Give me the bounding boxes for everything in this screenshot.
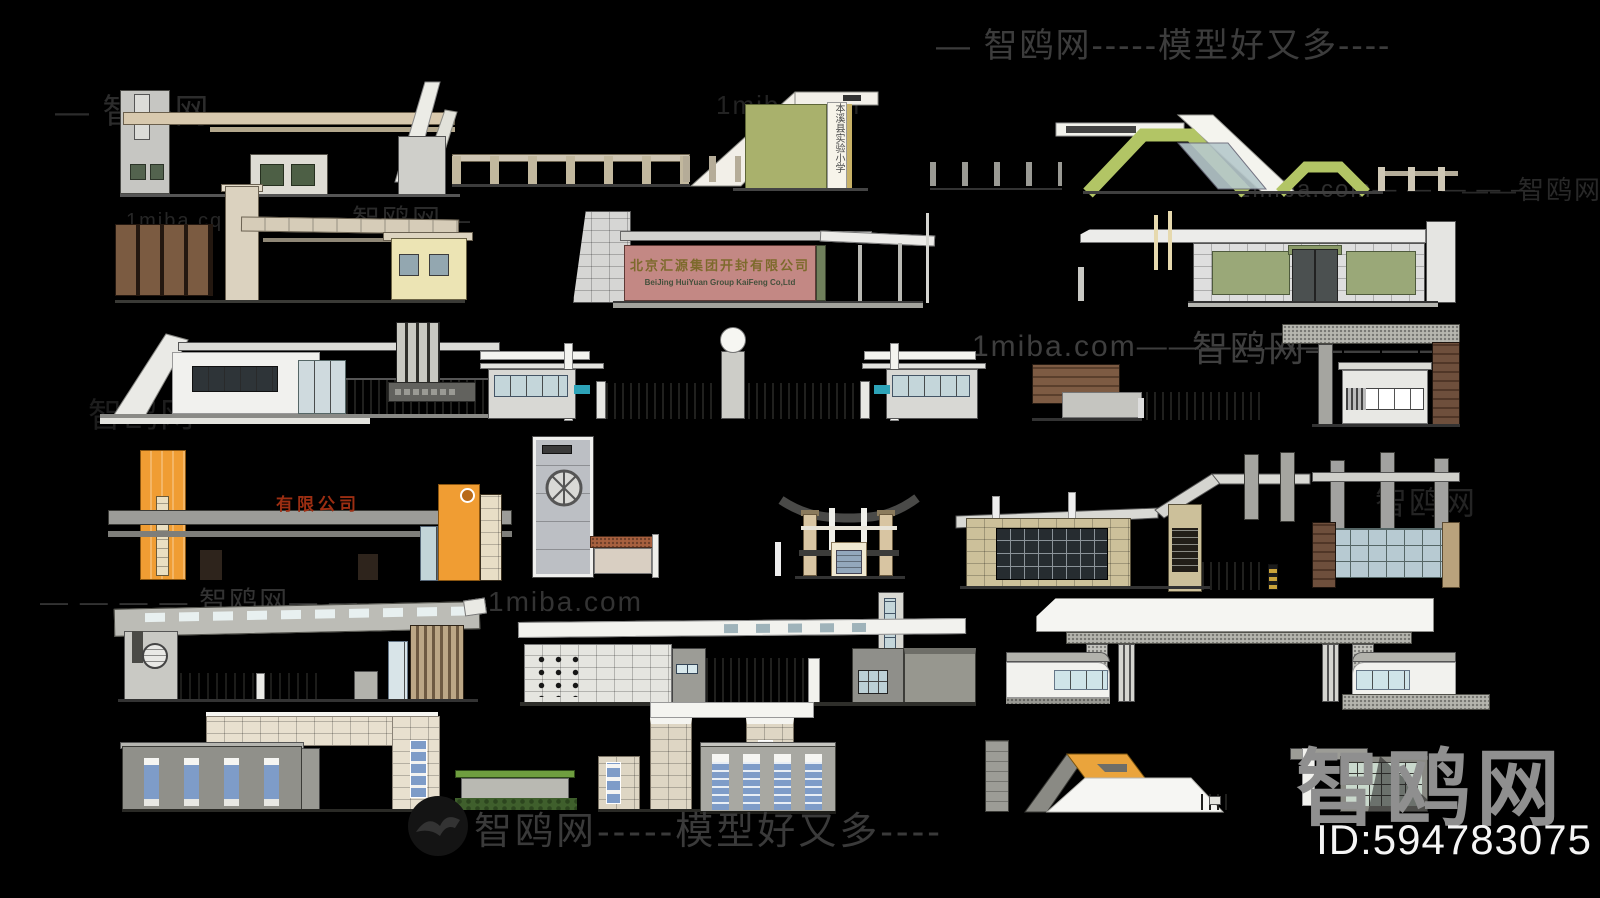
gray-block: [354, 671, 378, 701]
gull-logo-icon: [408, 796, 468, 856]
ground-line: [118, 699, 478, 702]
sign-text-cn: 北京汇源集团开封有限公司: [625, 255, 815, 274]
fence-right: [1378, 167, 1458, 193]
gold-strip: [847, 104, 852, 190]
tower-slats: [1172, 528, 1198, 572]
beige-pillar: [225, 186, 259, 302]
model-green-chevron-gate: [1028, 105, 1458, 203]
trapezoid-shapes: [1009, 738, 1233, 814]
tower-slot: [542, 445, 572, 454]
gray-block: [985, 740, 1009, 812]
wood-pillar: [1432, 342, 1460, 426]
booth-base: [1006, 698, 1110, 704]
gate-post: [596, 381, 606, 419]
white-apron: [100, 418, 370, 424]
dark-glass-grid: [996, 528, 1108, 580]
blue-window-stack: [606, 762, 621, 804]
ground-line: [960, 586, 1210, 589]
iron-fence: [1202, 562, 1264, 590]
green-panel-right: [1346, 251, 1416, 295]
window-grill: [1346, 388, 1366, 410]
round-logo-icon: [142, 643, 168, 669]
model-skylight-beam-gate: [108, 585, 488, 707]
model-wood-panel-gate: [113, 182, 468, 307]
company-name-text: 有限公司: [276, 490, 446, 512]
glass-booth: [298, 360, 346, 414]
gate-post: [860, 381, 870, 419]
base-platform: [1188, 301, 1438, 307]
beige-pillar: [1442, 522, 1460, 588]
guard-booth-left: [1006, 652, 1110, 704]
window-grid: [858, 670, 888, 694]
tiled-wall: [524, 644, 672, 704]
sign-text-marks: [395, 389, 455, 395]
ground-line: [733, 188, 868, 191]
beam-tip: [463, 598, 487, 617]
booth-window: [1356, 670, 1410, 690]
model-stone-glass-gate: [950, 452, 1312, 592]
shutter-window: [836, 550, 862, 574]
flat-canopy: [1080, 229, 1426, 243]
canopy: [820, 230, 935, 246]
fence-posts: [452, 156, 690, 184]
ground-line: [452, 184, 690, 187]
window-column: [144, 758, 159, 806]
booth-roof: [1338, 362, 1432, 370]
barrier-arm: [574, 385, 590, 394]
white-post: [1138, 398, 1144, 418]
skylight-slits: [145, 606, 465, 622]
model-canopy-green-panel-gate: [1078, 205, 1456, 310]
model-clock-tower-gate: [520, 432, 658, 582]
gate-pillar-left: [650, 718, 692, 812]
green-panel: [745, 104, 827, 190]
window-column: [264, 758, 279, 806]
fence-posts: [1378, 167, 1458, 191]
ground-line: [1032, 418, 1142, 421]
green-panel-left: [1212, 251, 1290, 295]
beige-pillar: [803, 514, 817, 576]
white-post: [775, 542, 781, 576]
booth-cap: [1006, 652, 1110, 662]
long-beam: [178, 342, 500, 351]
ground-line: [1312, 424, 1460, 427]
school-sign: 本溪县实验小学: [827, 102, 847, 190]
model-diagonal-ramp-gate: [100, 322, 500, 425]
model-id-label: ID:594783075: [1292, 816, 1592, 864]
booth-canopy: [864, 351, 976, 360]
wood-slat-panels: [115, 224, 213, 296]
iron-fence: [706, 658, 808, 704]
sphere-finial: [720, 327, 746, 353]
window-column: [184, 758, 199, 806]
beige-pillar: [879, 514, 893, 576]
wood-pillar: [1312, 522, 1336, 588]
booth-window: [494, 375, 568, 397]
faint-fence: [180, 673, 320, 701]
model-fence-c: [1138, 392, 1263, 424]
barrier-arm: [874, 385, 890, 394]
glass-strip: [420, 526, 438, 581]
cream-pole: [1168, 211, 1172, 270]
sign-text-en: BeiJing HuiYuan Group KaiFeng Co,Ltd: [625, 278, 815, 287]
gray-building-right: [904, 648, 976, 704]
dot-windows: [533, 653, 585, 697]
brick-roof: [590, 536, 656, 548]
ground-line: [115, 300, 465, 303]
booth-cap: [1352, 652, 1456, 662]
booth-canopy: [480, 351, 590, 360]
model-curved-roof-gate: [775, 470, 923, 580]
slotted-pillar: [1118, 644, 1135, 702]
cross-rail: [801, 526, 897, 530]
model-fence-a: [452, 148, 690, 188]
model-collage: — 智鸥网-- 1miba.com — 智鸥网-----模型好又多---- 1m…: [0, 0, 1600, 898]
tower-window: [130, 164, 146, 180]
gray-panel: [1062, 392, 1142, 418]
base-platform: [613, 301, 923, 308]
house-window: [429, 254, 449, 276]
model-huiyuan-sign-gate: 北京汇源集团开封有限公司 BeiJing HuiYuan Group KaiFe…: [558, 205, 938, 310]
window-column: [224, 758, 239, 806]
top-beam: [1282, 324, 1460, 344]
gray-column: [1280, 452, 1295, 522]
ground-line: [122, 809, 440, 812]
canopy-post: [898, 243, 902, 301]
white-gate-leaf: [808, 658, 820, 704]
center-pillar: [721, 351, 745, 419]
house-window: [399, 254, 419, 276]
company-sign-wall: 北京汇源集团开封有限公司 BeiJing HuiYuan Group KaiFe…: [624, 245, 816, 301]
white-post: [256, 673, 265, 701]
dark-fence-piece: [200, 550, 222, 580]
brick-wall: [594, 548, 652, 574]
school-sign-text: 本溪县实验小学: [828, 103, 848, 173]
wood-slat-screen: [410, 625, 464, 701]
flag-pole: [926, 213, 929, 303]
model-wood-wall: [1028, 362, 1146, 422]
hazard-bollard: [1268, 564, 1278, 590]
small-post: [1078, 267, 1084, 301]
guard-booth: [672, 648, 706, 704]
clock-emblem-icon: [544, 468, 584, 508]
under-beam: [1066, 632, 1412, 644]
canopy-skylights: [724, 623, 874, 633]
cream-pole: [1154, 215, 1158, 270]
name-sign-wall: [388, 382, 476, 402]
white-beam: [650, 702, 814, 718]
dark-glass-strip: [192, 366, 278, 392]
watermark-top-banner: — 智鸥网-----模型好又多----: [936, 18, 1391, 67]
portal-beam: [1036, 598, 1434, 632]
model-orange-pylon-gate: 有限公司: [108, 438, 520, 583]
model-school-gate: 本溪县实验小学: [683, 86, 878, 196]
glass-box: [388, 641, 408, 701]
grid-tower: [573, 211, 631, 303]
booth-window: [676, 664, 698, 674]
tiny-sign: [1209, 796, 1221, 805]
watermark-bottom-banner: 智鸥网-----模型好又多----: [474, 800, 943, 855]
double-door: [1292, 249, 1338, 303]
booth-window: [892, 375, 970, 397]
green-edge-strip: [816, 245, 826, 301]
roof-beam: [1312, 472, 1460, 482]
ground-line: [795, 576, 905, 579]
gray-column: [1244, 454, 1259, 520]
model-twin-guard-booths: [478, 325, 993, 425]
gray-wall: [461, 778, 569, 800]
speckled-beam: [1342, 694, 1490, 710]
iron-fence-left: [606, 383, 716, 419]
lattice-tower: [480, 494, 502, 581]
watermark-row1-brand-right: ——智鸥网: [1462, 170, 1600, 207]
model-trapezoid-gate: [985, 738, 1233, 814]
circle-emblem-icon: [460, 488, 475, 503]
blue-window-stack: [410, 740, 427, 798]
white-post: [652, 534, 659, 578]
right-tower: [1426, 221, 1456, 303]
model-canopy-tile-gate: [500, 590, 980, 712]
curved-roof: [775, 470, 923, 522]
booth-window: [1054, 670, 1108, 690]
green-cap: [455, 770, 575, 778]
fence-left: [683, 156, 741, 182]
model-glass-booth-gate: [1282, 318, 1460, 428]
iron-fence-right: [748, 383, 858, 419]
canopy-post: [858, 245, 862, 301]
tower-window: [150, 164, 164, 180]
dark-fence-piece: [358, 554, 378, 580]
model-column-glass-wall: [1312, 452, 1460, 592]
fence-posts: [1146, 392, 1261, 420]
pillar: [1318, 344, 1333, 426]
